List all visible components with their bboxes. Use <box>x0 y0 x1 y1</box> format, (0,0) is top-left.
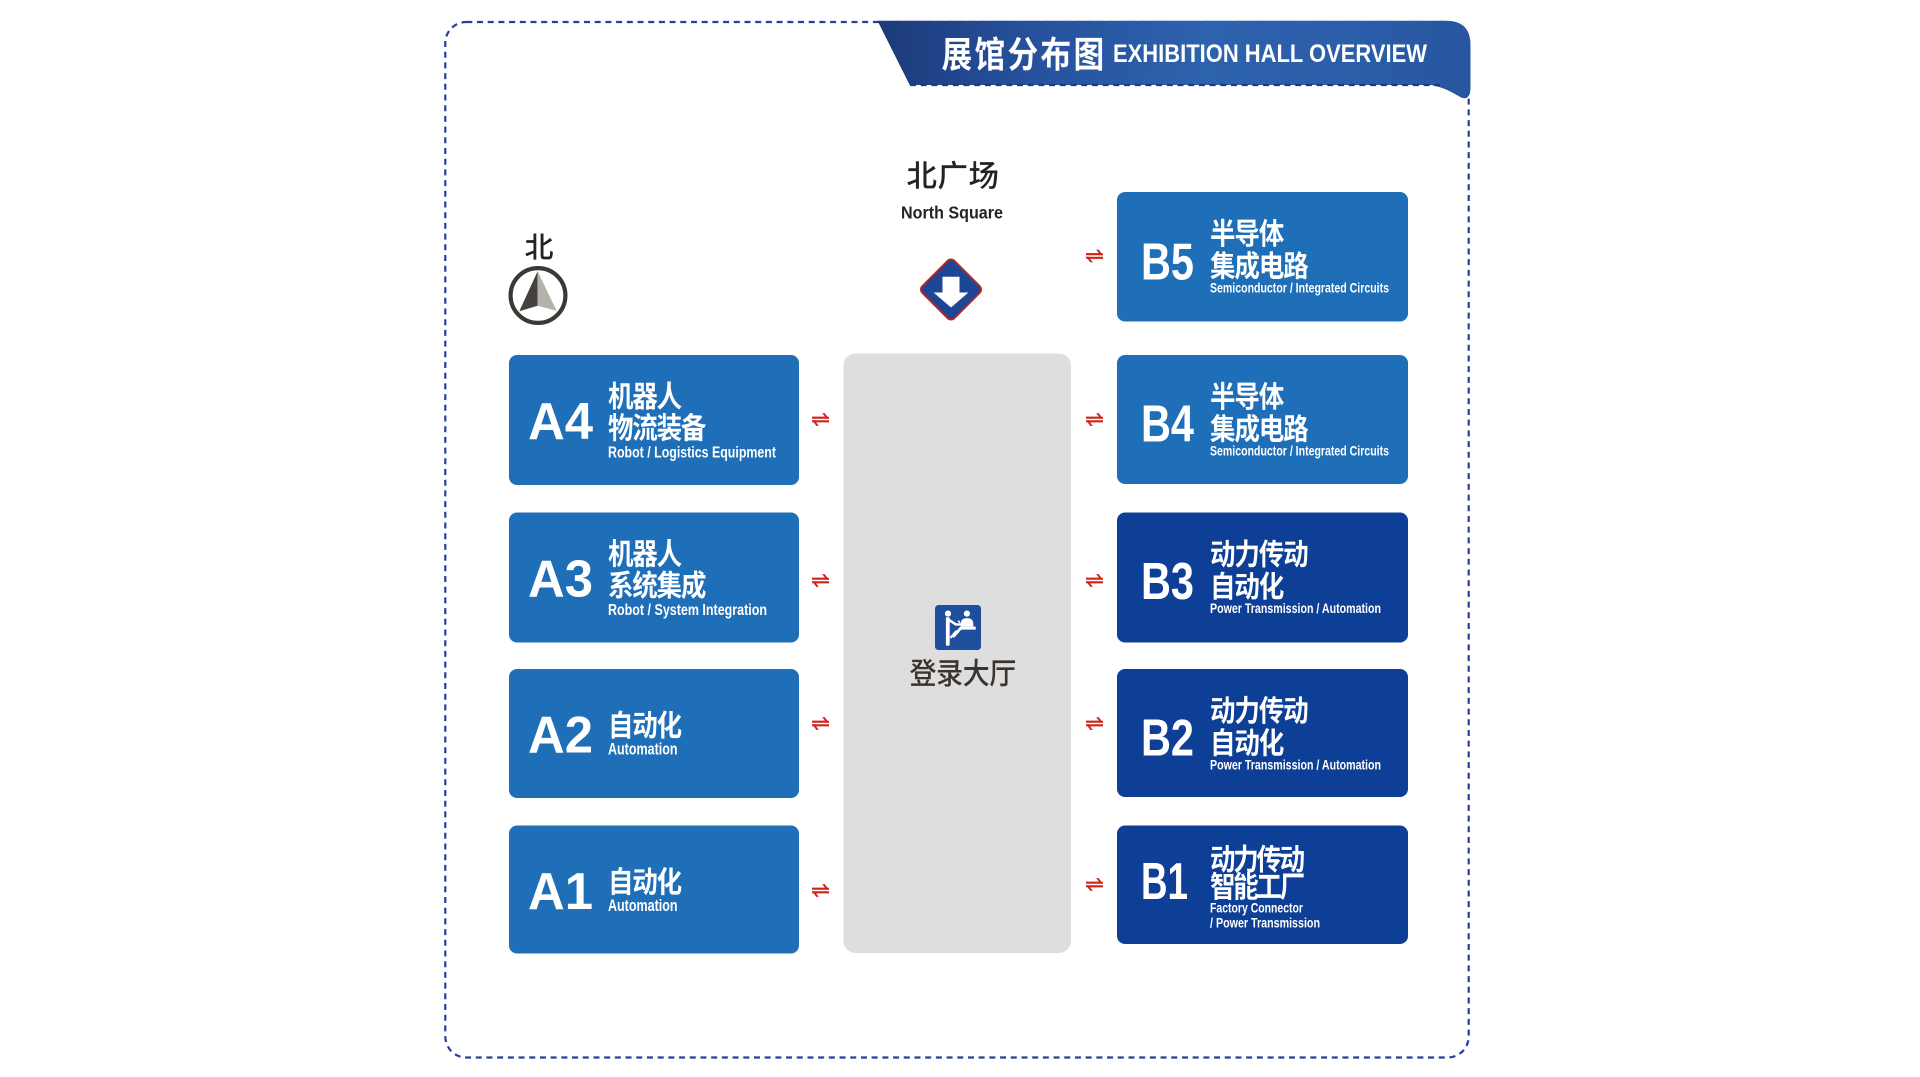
svg-text:Power Transmission / Automatio: Power Transmission / Automation <box>1210 601 1381 616</box>
svg-text:A3: A3 <box>528 551 593 609</box>
svg-text:/ Power Transmission: / Power Transmission <box>1210 915 1320 930</box>
svg-text:EXHIBITION HALL OVERVIEW: EXHIBITION HALL OVERVIEW <box>1113 40 1427 68</box>
svg-text:Automation: Automation <box>608 897 678 915</box>
svg-text:B1: B1 <box>1141 853 1188 911</box>
svg-text:B5: B5 <box>1141 234 1194 292</box>
svg-text:Robot / Logistics Equipment: Robot / Logistics Equipment <box>608 445 777 462</box>
svg-text:Semiconductor / Integrated Cir: Semiconductor / Integrated Circuits <box>1210 443 1389 459</box>
svg-text:Factory Connector: Factory Connector <box>1210 900 1304 915</box>
svg-text:North Square: North Square <box>901 203 1003 223</box>
svg-text:Automation: Automation <box>608 741 678 759</box>
svg-text:Power Transmission / Automatio: Power Transmission / Automation <box>1210 758 1381 773</box>
svg-text:A2: A2 <box>528 707 593 765</box>
svg-text:A1: A1 <box>528 863 593 921</box>
svg-text:Robot / System Integration: Robot / System Integration <box>608 602 767 619</box>
svg-text:A4: A4 <box>528 393 593 451</box>
svg-text:B3: B3 <box>1141 553 1194 611</box>
svg-text:Semiconductor / Integrated Cir: Semiconductor / Integrated Circuits <box>1210 280 1389 296</box>
svg-text:B4: B4 <box>1141 396 1194 454</box>
svg-text:B2: B2 <box>1141 710 1194 768</box>
